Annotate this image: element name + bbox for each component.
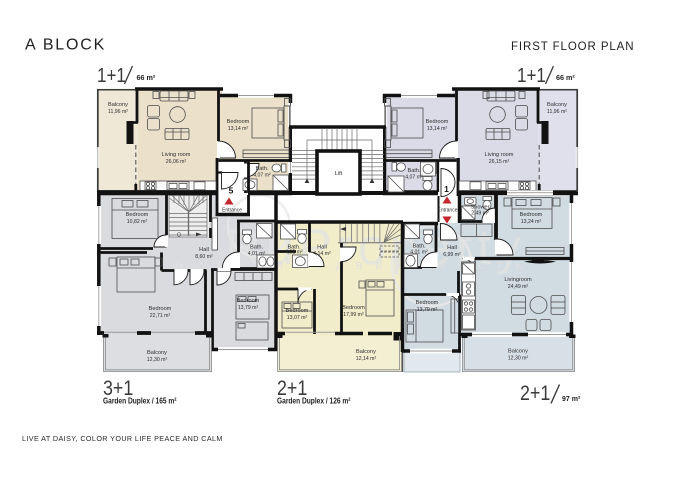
svg-text:12,30 m²: 12,30 m²	[147, 357, 168, 363]
svg-text:Bath.: Bath.	[255, 166, 269, 172]
svg-text:97 m²: 97 m²	[562, 396, 581, 403]
svg-text:4,01 m²: 4,01 m²	[248, 251, 266, 257]
svg-text:Bath.: Bath.	[250, 245, 264, 251]
svg-text:Bedroom: Bedroom	[342, 305, 365, 311]
svg-text:Bath.: Bath.	[407, 168, 421, 174]
svg-text:11,96 m²: 11,96 m²	[108, 109, 128, 115]
svg-text:Bedroom: Bedroom	[149, 306, 172, 312]
svg-text:Livingroom: Livingroom	[504, 277, 532, 283]
svg-text:Entrance: Entrance	[437, 208, 457, 214]
svg-text:Balcony: Balcony	[147, 350, 167, 356]
svg-text:Lift: Lift	[335, 171, 343, 177]
svg-text:4,07 m²: 4,07 m²	[253, 173, 271, 179]
svg-text:66 m²: 66 m²	[556, 73, 575, 82]
svg-text:22,71 m²: 22,71 m²	[150, 313, 171, 319]
svg-text:Balcony: Balcony	[356, 349, 376, 355]
svg-text:1+1: 1+1	[517, 64, 546, 87]
svg-text:24,49 m²: 24,49 m²	[508, 284, 529, 290]
svg-text:13,07 m²: 13,07 m²	[287, 315, 308, 321]
svg-text:Bedroom: Bedroom	[286, 308, 309, 314]
svg-text:12,30 m²: 12,30 m²	[508, 356, 529, 362]
svg-text:1: 1	[444, 184, 449, 194]
svg-text:Balcony: Balcony	[508, 349, 528, 355]
svg-text:2+1: 2+1	[520, 382, 550, 406]
svg-text:Living room: Living room	[162, 152, 191, 158]
svg-text:13,14 m²: 13,14 m²	[228, 126, 249, 132]
svg-text:8,60 m²: 8,60 m²	[195, 254, 213, 260]
svg-text:6,99 m²: 6,99 m²	[443, 252, 461, 258]
svg-text:Balcony: Balcony	[108, 102, 128, 108]
svg-text:Garden Duplex / 126 m²: Garden Duplex / 126 m²	[277, 396, 351, 406]
svg-text:A BLOCK: A BLOCK	[25, 37, 106, 54]
svg-text:Bedroom: Bedroom	[416, 300, 439, 306]
svg-text:LIVE AT DAISY, COLOR YOUR LIF: LIVE AT DAISY, COLOR YOUR LIFE PEACE AND…	[22, 434, 223, 443]
svg-text:13,14 m²: 13,14 m²	[427, 126, 448, 132]
svg-text:FIRST FLOOR PLAN: FIRST FLOOR PLAN	[511, 41, 634, 53]
svg-text:Hall: Hall	[199, 247, 209, 253]
svg-text:Garden Duplex / 165 m²: Garden Duplex / 165 m²	[103, 396, 177, 406]
svg-text:Hall: Hall	[447, 245, 457, 251]
svg-text:10,82 m²: 10,82 m²	[127, 219, 148, 225]
svg-text:1+1: 1+1	[97, 64, 126, 87]
svg-text:4,02 m²: 4,02 m²	[285, 250, 303, 256]
svg-text:12,14 m²: 12,14 m²	[356, 356, 377, 362]
svg-text:Bedroom: Bedroom	[520, 212, 543, 218]
svg-text:17,99 m²: 17,99 m²	[343, 312, 364, 318]
svg-text:Balcony: Balcony	[547, 102, 567, 108]
svg-text:4,07 m²: 4,07 m²	[405, 175, 423, 181]
svg-text:Entrance: Entrance	[222, 208, 242, 214]
svg-text:5: 5	[229, 186, 234, 196]
svg-text:26,15 m²: 26,15 m²	[489, 159, 510, 165]
svg-text:Living room: Living room	[485, 152, 514, 158]
svg-text:Bedroom: Bedroom	[237, 298, 260, 304]
svg-text:2,49 m²: 2,49 m²	[471, 211, 489, 217]
svg-text:Bedroom: Bedroom	[426, 119, 449, 125]
svg-text:13,24 m²: 13,24 m²	[521, 219, 542, 225]
svg-text:4,14 m²: 4,14 m²	[313, 251, 331, 257]
svg-text:Bedroom: Bedroom	[126, 212, 149, 218]
svg-text:66 m²: 66 m²	[137, 73, 156, 82]
svg-text:Hall: Hall	[317, 245, 327, 251]
svg-text:13,79 m²: 13,79 m²	[417, 307, 438, 313]
svg-text:4,01 m²: 4,01 m²	[410, 250, 428, 256]
svg-text:Bedroom: Bedroom	[227, 119, 250, 125]
svg-text:11,96 m²: 11,96 m²	[547, 109, 567, 115]
svg-text:26,06 m²: 26,06 m²	[166, 159, 187, 165]
svg-text:13,79 m²: 13,79 m²	[238, 305, 259, 311]
